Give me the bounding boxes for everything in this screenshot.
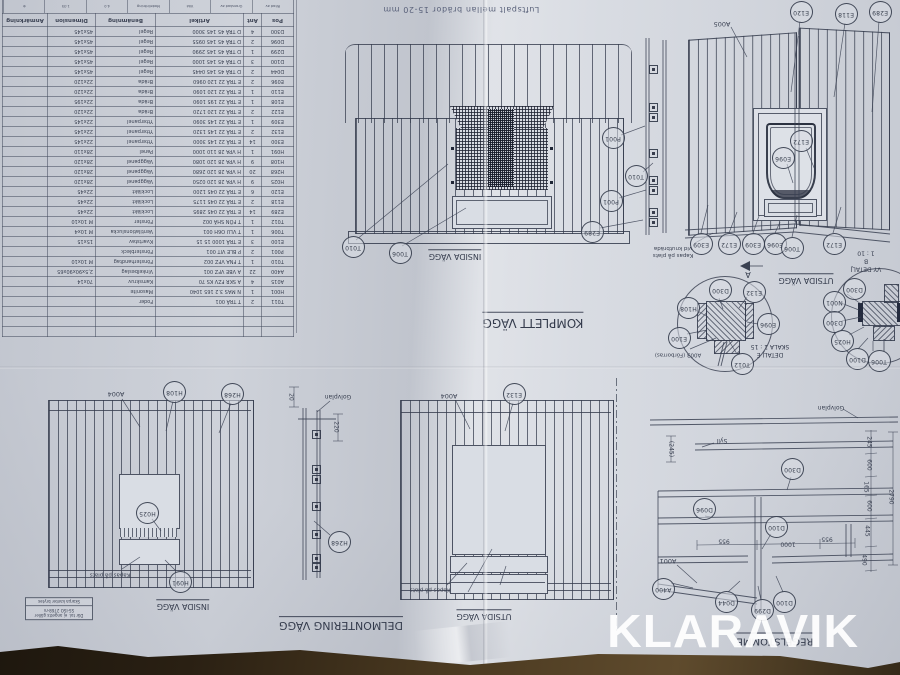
balloon-e309: E309 — [742, 233, 765, 255]
table-cell — [3, 147, 48, 157]
label-golvplan: Golvplan — [325, 392, 352, 400]
table-row: H1089H VPA 28 120 1080Väggpanel28x120 — [3, 157, 294, 167]
table-cell: 4 — [244, 27, 262, 37]
caption-vy-detalj-b: VY DETALJ B 1 : 10 — [849, 249, 883, 272]
table-cell — [3, 67, 48, 77]
table-cell: Regel — [96, 57, 156, 67]
balloon-e172: E172 — [790, 130, 813, 152]
dim-245: 245 — [866, 436, 873, 447]
table-cell: 28x120 — [48, 167, 96, 177]
balloon-h025: H025 — [136, 502, 159, 524]
table-cell: 2 — [244, 67, 262, 77]
table-cell: Artikel — [156, 14, 244, 27]
table-cell — [3, 197, 48, 207]
table-cell — [3, 157, 48, 167]
table-cell: 45x145 — [48, 47, 96, 57]
table-cell — [156, 317, 244, 327]
balloon-e289: E289 — [869, 1, 892, 23]
table-cell: Dimension — [48, 14, 96, 27]
table-cell: 45x145 — [48, 37, 96, 47]
table-cell — [3, 87, 48, 97]
balloon-a400: A400 — [652, 578, 675, 600]
table-cell: E TRÄ 22 120 1720 — [156, 107, 244, 117]
table-cell: T TRÄ 001 — [156, 297, 244, 307]
title-strip-cell: Granskad av — [210, 0, 251, 13]
title-strip-cell: Vikt — [169, 0, 210, 13]
panel-clip — [649, 186, 658, 195]
table-cell: E TRÄ 22 045 1200 — [156, 187, 244, 197]
balloon-t010: T010 — [342, 236, 365, 258]
table-cell: D TRÄ 45 145 3000 — [156, 27, 244, 37]
table-cell: E TRÄ 22 145 1320 — [156, 127, 244, 137]
table-cell: A SKR FZV KS 70 — [156, 277, 244, 287]
table-cell — [244, 317, 262, 327]
table-cell: H VPA 28 120 2680 — [156, 167, 244, 177]
table-cell: E TRÄ 22 145 3000 — [156, 137, 244, 147]
table-cell: 22x120 — [48, 77, 96, 87]
table-row — [3, 317, 294, 327]
table-cell — [3, 247, 48, 257]
table-cell: P BLE VIT 001 — [156, 247, 244, 257]
table-cell: 1 — [244, 47, 262, 57]
balloon-e172: E172 — [823, 233, 846, 255]
table-cell — [3, 327, 48, 337]
dim-600: 600 — [866, 459, 873, 470]
panel-clip — [312, 563, 321, 572]
table-cell: Regel — [96, 37, 156, 47]
table-cell: Fönsterbleck — [96, 247, 156, 257]
balloon-d300: D300 — [843, 278, 866, 300]
table-cell: 22x145 — [48, 117, 96, 127]
table-cell: E118 — [262, 197, 294, 207]
tolerance-note-box: Där tol. ej angetts gäller SS-ISO 2768-m… — [25, 597, 93, 620]
table-cell — [3, 297, 48, 307]
table-cell: H091 — [262, 147, 294, 157]
dim-600: 600 — [866, 500, 873, 511]
parts-list-block: T0112T TRÄ 001FoderH0011N MAS 3.2 165 10… — [2, 0, 294, 337]
table-cell: Kvartstav — [96, 237, 156, 247]
table-cell: 3 — [244, 237, 262, 247]
table-cell: 9 — [244, 157, 262, 167]
table-row: D2991D TRÄ 45 145 2990Regel45x145 — [3, 47, 294, 57]
table-row — [3, 327, 294, 337]
table-cell: 15x15 — [48, 237, 96, 247]
table-cell: 22x195 — [48, 97, 96, 107]
balloon-d100: D100 — [765, 516, 788, 538]
klaravik-watermark: KLARAVIK — [607, 604, 859, 658]
table-cell: 1 — [244, 147, 262, 157]
table-cell: D300 — [262, 27, 294, 37]
table-cell: D044 — [262, 67, 294, 77]
table-cell: H268 — [262, 167, 294, 177]
table-cell: A400 — [262, 267, 294, 277]
table-cell — [3, 57, 48, 67]
label-a005: A005 — [714, 20, 731, 28]
title-strip-cell: ⊕ — [3, 0, 44, 13]
table-margin-line — [296, 0, 297, 333]
caption-komplett-v-gg: KOMPLETT VÄGG — [483, 312, 584, 330]
table-cell — [3, 277, 48, 287]
dim-955: 955 — [718, 538, 729, 545]
table-cell — [96, 307, 156, 317]
panel-clip — [312, 465, 321, 474]
table-cell: T010 — [262, 257, 294, 267]
dim-165: 165 — [863, 481, 870, 492]
table-row: E1322E TRÄ 22 145 1320Ytterpanel22x145 — [3, 127, 294, 137]
table-cell: E120 — [262, 187, 294, 197]
table-cell — [156, 307, 244, 317]
balloon-h268: H268 — [221, 383, 244, 405]
table-cell: D TRÄ 45 145 2990 — [156, 47, 244, 57]
balloon-t006: T006 — [781, 237, 804, 259]
balloon-t010: T010 — [625, 165, 648, 187]
table-cell — [3, 287, 48, 297]
table-cell: T011 — [262, 297, 294, 307]
dim-490: 490 — [861, 554, 868, 565]
label-syll: Syll — [717, 436, 728, 444]
table-cell: 22x45 — [48, 197, 96, 207]
balloon-e100: E100 — [668, 327, 691, 349]
table-cell — [3, 237, 48, 247]
table-cell: E TRÄ 1000 15 15 — [156, 237, 244, 247]
table-row: E1222E TRÄ 22 120 1720Bräda22x120 — [3, 107, 294, 117]
balloon-e172: E172 — [718, 233, 741, 255]
table-cell: E122 — [262, 107, 294, 117]
table-cell — [262, 317, 294, 327]
table-cell: 2 — [244, 247, 262, 257]
dim-20: 20 — [288, 393, 295, 401]
table-cell: 70x14 — [48, 277, 96, 287]
balloon-h108: H108 — [677, 297, 700, 319]
table-row: E0962E TRÄ 22 120 0960Bräda22x120 — [3, 77, 294, 87]
table-cell: Ventilationslucka — [96, 227, 156, 237]
table-cell: 1 — [244, 287, 262, 297]
table-cell: E TRÄ 22 045 2895 — [156, 207, 244, 217]
table-row: D0442D TRÄ 45 145 0445Regel45x145 — [3, 67, 294, 77]
table-cell: H VPA 28 110 1000 — [156, 147, 244, 157]
table-cell: 22x120 — [48, 107, 96, 117]
table-cell: 45x145 — [48, 27, 96, 37]
table-cell: 4 — [244, 277, 262, 287]
table-cell: Väggpanel — [96, 167, 156, 177]
photo-of-blueprint: T010T006P001T010P001E289E120E118E289E172… — [0, 0, 900, 675]
table-cell: 22x145 — [48, 127, 96, 137]
table-cell: 1 — [244, 217, 262, 227]
table-cell — [3, 77, 48, 87]
table-cell: E300 — [262, 137, 294, 147]
table-cell: 45x145 — [48, 57, 96, 67]
balloon-e096: E096 — [772, 147, 795, 169]
table-cell — [3, 107, 48, 117]
table-row: T0112T TRÄ 001Foder — [3, 297, 294, 307]
balloon-d300: D300 — [709, 279, 732, 301]
dim-2790: 2790 — [888, 489, 895, 504]
table-row: H0911H VPA 28 110 1000Panel28x110 — [3, 147, 294, 157]
table-cell: 14 — [244, 207, 262, 217]
table-row: H0259H VPA 28 120 0250Väggpanel28x120 — [3, 177, 294, 187]
table-cell — [3, 47, 48, 57]
table-row: E1206E TRÄ 22 045 1200Lockläkt22x45 — [3, 187, 294, 197]
table-cell: 22x145 — [48, 137, 96, 147]
table-cell: M 10x10 — [48, 257, 96, 267]
table-cell: Bräda — [96, 77, 156, 87]
table-cell: Bräda — [96, 97, 156, 107]
balloon-e289: E289 — [581, 221, 604, 243]
table-cell: Ytterpanel — [96, 127, 156, 137]
table-cell: E TRÄ 22 045 1175 — [156, 197, 244, 207]
title-strip-cell: 4.0 — [86, 0, 127, 13]
table-row: E28914E TRÄ 22 045 2895Lockläkt22x45 — [3, 207, 294, 217]
table-cell: 2 — [244, 127, 262, 137]
table-row: A40022A VBE VFZ 001Vinkelbeslag2,5x90x90… — [3, 267, 294, 277]
table-cell — [244, 327, 262, 337]
table-cell — [262, 307, 294, 317]
balloon-h025: H025 — [831, 330, 854, 352]
balloon-t006: T006 — [389, 242, 412, 264]
table-cell: 2 — [244, 77, 262, 87]
table-cell — [3, 267, 48, 277]
table-cell: H108 — [262, 157, 294, 167]
table-row: E30014E TRÄ 22 145 3000Ytterpanel22x145 — [3, 137, 294, 147]
table-cell — [3, 137, 48, 147]
label-a001: A001 — [660, 557, 677, 565]
table-cell — [262, 327, 294, 337]
table-cell: 1 — [244, 257, 262, 267]
balloon-d096: D096 — [693, 498, 716, 520]
panel-clip — [312, 502, 321, 511]
table-cell: 1 — [244, 227, 262, 237]
table-cell: A VBE VFZ 001 — [156, 267, 244, 277]
table-cell: Foder — [96, 297, 156, 307]
panel-clip — [649, 218, 658, 227]
label-a004: A004 — [441, 392, 458, 400]
table-cell — [244, 307, 262, 317]
table-cell: 20 — [244, 167, 262, 177]
table-cell: E100 — [262, 237, 294, 247]
table-cell: 1 — [244, 87, 262, 97]
table-cell: T FNA VFZ 002 — [156, 257, 244, 267]
table-cell: Masonite — [96, 287, 156, 297]
panel-clip — [649, 208, 658, 217]
caption-insida-v-gg: INSIDA VÄGG — [157, 599, 210, 611]
table-cell — [96, 317, 156, 327]
table-cell — [3, 227, 48, 237]
table-cell: H VPA 28 120 1080 — [156, 157, 244, 167]
label-kapas-p-plats: Kapas på plats — [90, 571, 130, 578]
label-golvplan: Golvplan — [818, 403, 845, 411]
panel-clip — [649, 65, 658, 74]
balloon-n001: N001 — [823, 291, 846, 313]
dim-220: 220 — [333, 421, 340, 432]
balloon-h268: H268 — [328, 531, 351, 553]
spacing-note: Luftspalt mellan brädor 15-20 mm — [300, 0, 622, 14]
title-strip-cell: Modellritning — [127, 0, 168, 13]
table-cell: M 10x4 — [48, 227, 96, 237]
balloon-e132: E132 — [743, 281, 766, 303]
table-cell — [3, 257, 48, 267]
dim-955: 955 — [821, 536, 832, 543]
table-row: D3004D TRÄ 45 145 3000Regel45x145 — [3, 27, 294, 37]
table-cell: 2 — [244, 297, 262, 307]
table-cell: 2 — [244, 37, 262, 47]
table-row: H0011N MAS 3.2 165 1040Masonite — [3, 287, 294, 297]
table-cell: Kamskruv — [96, 277, 156, 287]
panel-clip — [312, 554, 321, 563]
table-row — [3, 307, 294, 317]
table-cell: E TRÄ 22 120 1090 — [156, 87, 244, 97]
table-cell: E TRÄ 22 145 3090 — [156, 117, 244, 127]
table-cell: Väggpanel — [96, 157, 156, 167]
table-cell: T FÖN SHÄ 002 — [156, 217, 244, 227]
table-cell: 28x110 — [48, 147, 96, 157]
balloon-p001: P001 — [600, 190, 623, 212]
table-cell: P001 — [262, 247, 294, 257]
panel-clip — [312, 430, 321, 439]
label-a004: A004 — [108, 390, 125, 398]
table-cell: Bräda — [96, 107, 156, 117]
balloon-e120: E120 — [790, 1, 813, 23]
table-cell: Regel — [96, 47, 156, 57]
table-cell: Bräda — [96, 87, 156, 97]
panel-clip — [649, 113, 658, 122]
table-cell: Lockläkt — [96, 197, 156, 207]
title-strip-cell: Ritad av — [252, 0, 293, 13]
table-cell: Pos — [262, 14, 294, 27]
table-cell: 22x120 — [48, 87, 96, 97]
title-strip-cell: 1:35 — [44, 0, 85, 13]
panel-clip — [312, 530, 321, 539]
table-cell — [3, 307, 48, 317]
table-cell: 6 — [244, 187, 262, 197]
balloon-h091: H091 — [169, 571, 192, 593]
panel-clip — [649, 103, 658, 112]
table-cell — [3, 117, 48, 127]
dim-445: 445 — [864, 525, 871, 536]
table-row: E1003E TRÄ 1000 15 15Kvartstav15x15 — [3, 237, 294, 247]
table-row: D1003D TRÄ 45 145 1000Regel45x145 — [3, 57, 294, 67]
paper-fold-crease-horizontal — [0, 366, 900, 369]
table-cell: 2 — [244, 107, 262, 117]
table-row: T0121T FÖN SHÄ 002FönsterM 10x10 — [3, 217, 294, 227]
table-row: P0012P BLE VIT 001Fönsterbleck — [3, 247, 294, 257]
table-cell — [3, 207, 48, 217]
balloon-d300: D300 — [781, 458, 804, 480]
table-cell: M 10x10 — [48, 217, 96, 227]
table-cell — [48, 297, 96, 307]
table-row: T0101T FNA VFZ 002FönsterhandtagM 10x10 — [3, 257, 294, 267]
table-cell: Ytterpanel — [96, 137, 156, 147]
table-cell: Fönster — [96, 217, 156, 227]
table-cell: 9 — [244, 177, 262, 187]
table-cell: 28x120 — [48, 177, 96, 187]
table-cell: D100 — [262, 57, 294, 67]
dim-1000: 1000 — [780, 541, 795, 548]
table-row: PosAntArtikelBenämningDimensionAnmärknin… — [3, 14, 294, 27]
table-cell: 22x45 — [48, 187, 96, 197]
balloon-e118: E118 — [835, 3, 858, 25]
panel-clip — [312, 475, 321, 484]
caption-a: A — [745, 269, 750, 279]
table-cell: Panel — [96, 147, 156, 157]
table-cell: D TRÄ 45 145 1000 — [156, 57, 244, 67]
table-cell: 1 — [244, 117, 262, 127]
table-cell: Lockläkt — [96, 207, 156, 217]
table-cell: E096 — [262, 77, 294, 87]
table-cell — [3, 177, 48, 187]
table-row: E1101E TRÄ 22 120 1090Bräda22x120 — [3, 87, 294, 97]
table-cell — [48, 307, 96, 317]
panel-clip — [649, 149, 658, 158]
tolerance-line-3: Skarpa kanter brytes — [26, 598, 92, 605]
table-cell: A015 — [262, 277, 294, 287]
table-cell: 22 — [244, 267, 262, 277]
table-cell: Väggpanel — [96, 177, 156, 187]
caption-utsida-v-gg: UTSIDA VÄGG — [779, 273, 834, 285]
label-a003-f-rborras: A003 (Förborras) — [655, 351, 701, 358]
table-row: T0061T VLU O6H 001VentilationsluckaM 10x… — [3, 227, 294, 237]
table-row: E3091E TRÄ 22 145 3090Ytterpanel22x145 — [3, 117, 294, 127]
caption-delmontering-v-gg: DELMONTERING VÄGG — [279, 616, 403, 632]
table-cell — [156, 327, 244, 337]
table-cell — [3, 97, 48, 107]
table-cell: 14 — [244, 137, 262, 147]
label-kapas-p-plats: Kapas på plats vid knutbräda — [653, 244, 693, 258]
table-cell: 2,5x90x90x65 — [48, 267, 96, 277]
table-cell: 3 — [244, 57, 262, 67]
table-cell: 45x145 — [48, 67, 96, 77]
table-cell — [3, 127, 48, 137]
table-cell — [96, 327, 156, 337]
paper-fold-crease — [483, 0, 488, 670]
tolerance-line-1: Där tol. ej angetts gäller — [26, 613, 92, 618]
balloon-h108: H108 — [163, 381, 186, 403]
table-cell — [48, 317, 96, 327]
table-cell: E289 — [262, 207, 294, 217]
table-row: E1182E TRÄ 22 045 1175Lockläkt22x45 — [3, 197, 294, 207]
table-cell: 28x120 — [48, 157, 96, 167]
table-cell — [3, 167, 48, 177]
table-cell: N MAS 3.2 165 1040 — [156, 287, 244, 297]
table-cell: H VPA 28 120 0250 — [156, 177, 244, 187]
drawing-sheet-paper: T010T006P001T010P001E289E120E118E289E172… — [0, 0, 900, 670]
table-cell: Anmärkning — [3, 14, 48, 27]
table-cell: E108 — [262, 97, 294, 107]
panel-clip — [649, 176, 658, 185]
table-cell: D096 — [262, 37, 294, 47]
table-cell: E110 — [262, 87, 294, 97]
table-cell: E TRÄ 22 195 1090 — [156, 97, 244, 107]
table-cell: Benämning — [96, 14, 156, 27]
parts-table: T0112T TRÄ 001FoderH0011N MAS 3.2 165 10… — [2, 13, 294, 337]
table-row: A0154A SKR FZV KS 70Kamskruv70x14 — [3, 277, 294, 287]
table-cell: T012 — [262, 217, 294, 227]
table-cell: H001 — [262, 287, 294, 297]
table-cell: 1 — [244, 97, 262, 107]
caption-insida-v-gg: INSIDA VÄGG — [429, 249, 482, 261]
table-cell — [3, 217, 48, 227]
tolerance-line-2: SS-ISO 2768-m — [26, 607, 92, 612]
table-cell: H025 — [262, 177, 294, 187]
table-row: H26820H VPA 28 120 2680Väggpanel28x120 — [3, 167, 294, 177]
table-cell — [48, 327, 96, 337]
table-cell: Vinkelbeslag — [96, 267, 156, 277]
table-row: D0962D TRÄ 45 145 0955Regel45x145 — [3, 37, 294, 47]
table-cell: 2 — [244, 197, 262, 207]
balloon-e132: E132 — [503, 383, 526, 405]
table-cell: D TRÄ 45 145 0445 — [156, 67, 244, 77]
table-cell — [48, 287, 96, 297]
table-cell — [3, 37, 48, 47]
